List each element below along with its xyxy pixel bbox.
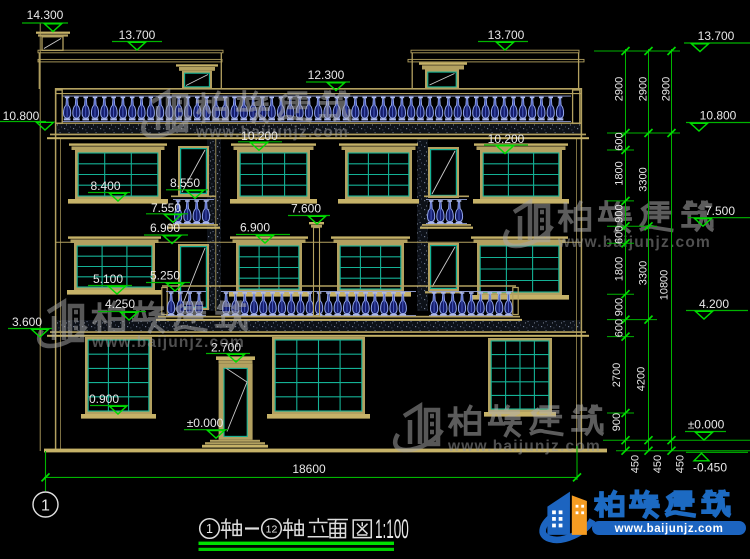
svg-text:14.300: 14.300 <box>27 8 64 22</box>
svg-text:10.200: 10.200 <box>241 129 278 143</box>
svg-text:2900: 2900 <box>638 77 650 101</box>
svg-text:1:100: 1:100 <box>375 514 409 544</box>
svg-text:900: 900 <box>614 204 626 222</box>
svg-text:3300: 3300 <box>638 261 650 285</box>
svg-text:13.700: 13.700 <box>698 29 735 43</box>
svg-text:450: 450 <box>675 455 687 473</box>
svg-text:6.900: 6.900 <box>150 221 180 235</box>
svg-text:±0.000: ±0.000 <box>187 416 224 430</box>
svg-text:±0.000: ±0.000 <box>688 418 725 432</box>
svg-text:450: 450 <box>652 455 664 473</box>
svg-text:4.250: 4.250 <box>105 297 135 311</box>
svg-text:1800: 1800 <box>614 161 626 185</box>
svg-text:2900: 2900 <box>614 77 626 101</box>
svg-text:10800: 10800 <box>659 270 671 301</box>
svg-text:www.baijunjz.com: www.baijunjz.com <box>447 438 601 455</box>
svg-text:7.500: 7.500 <box>705 204 735 218</box>
svg-text:18600: 18600 <box>292 462 326 476</box>
svg-text:5.100: 5.100 <box>93 272 123 286</box>
svg-text:5.250: 5.250 <box>150 269 180 283</box>
svg-text:www.baijunjz.com: www.baijunjz.com <box>557 234 711 251</box>
svg-text:1: 1 <box>41 498 50 515</box>
svg-text:450: 450 <box>630 455 642 473</box>
svg-text:4.200: 4.200 <box>699 297 729 311</box>
svg-text:900: 900 <box>614 298 626 316</box>
svg-text:2900: 2900 <box>661 77 673 101</box>
svg-text:10.800: 10.800 <box>700 109 737 123</box>
svg-text:600: 600 <box>614 226 626 244</box>
svg-text:13.700: 13.700 <box>119 28 156 42</box>
svg-text:7.600: 7.600 <box>291 202 321 216</box>
svg-text:7.550: 7.550 <box>151 201 181 215</box>
svg-text:12.300: 12.300 <box>308 68 345 82</box>
svg-text:12: 12 <box>266 524 278 536</box>
svg-text:3300: 3300 <box>638 167 650 191</box>
svg-text:600: 600 <box>614 132 626 150</box>
svg-text:3.600: 3.600 <box>12 315 42 329</box>
svg-text:13.700: 13.700 <box>488 28 525 42</box>
svg-text:2700: 2700 <box>611 363 623 387</box>
svg-text:www.baijunjz.com: www.baijunjz.com <box>614 523 724 535</box>
svg-text:1: 1 <box>206 522 213 536</box>
svg-text:0.900: 0.900 <box>89 392 119 406</box>
svg-text:4200: 4200 <box>636 367 648 391</box>
svg-text:2.700: 2.700 <box>211 341 241 355</box>
svg-text:600: 600 <box>614 319 626 337</box>
svg-text:1800: 1800 <box>614 257 626 281</box>
svg-text:8.550: 8.550 <box>170 176 200 190</box>
svg-text:8.400: 8.400 <box>90 179 120 193</box>
svg-text:6.900: 6.900 <box>240 221 270 235</box>
svg-text:-0.450: -0.450 <box>693 461 727 475</box>
svg-text:900: 900 <box>611 413 623 431</box>
svg-text:10.200: 10.200 <box>488 132 525 146</box>
